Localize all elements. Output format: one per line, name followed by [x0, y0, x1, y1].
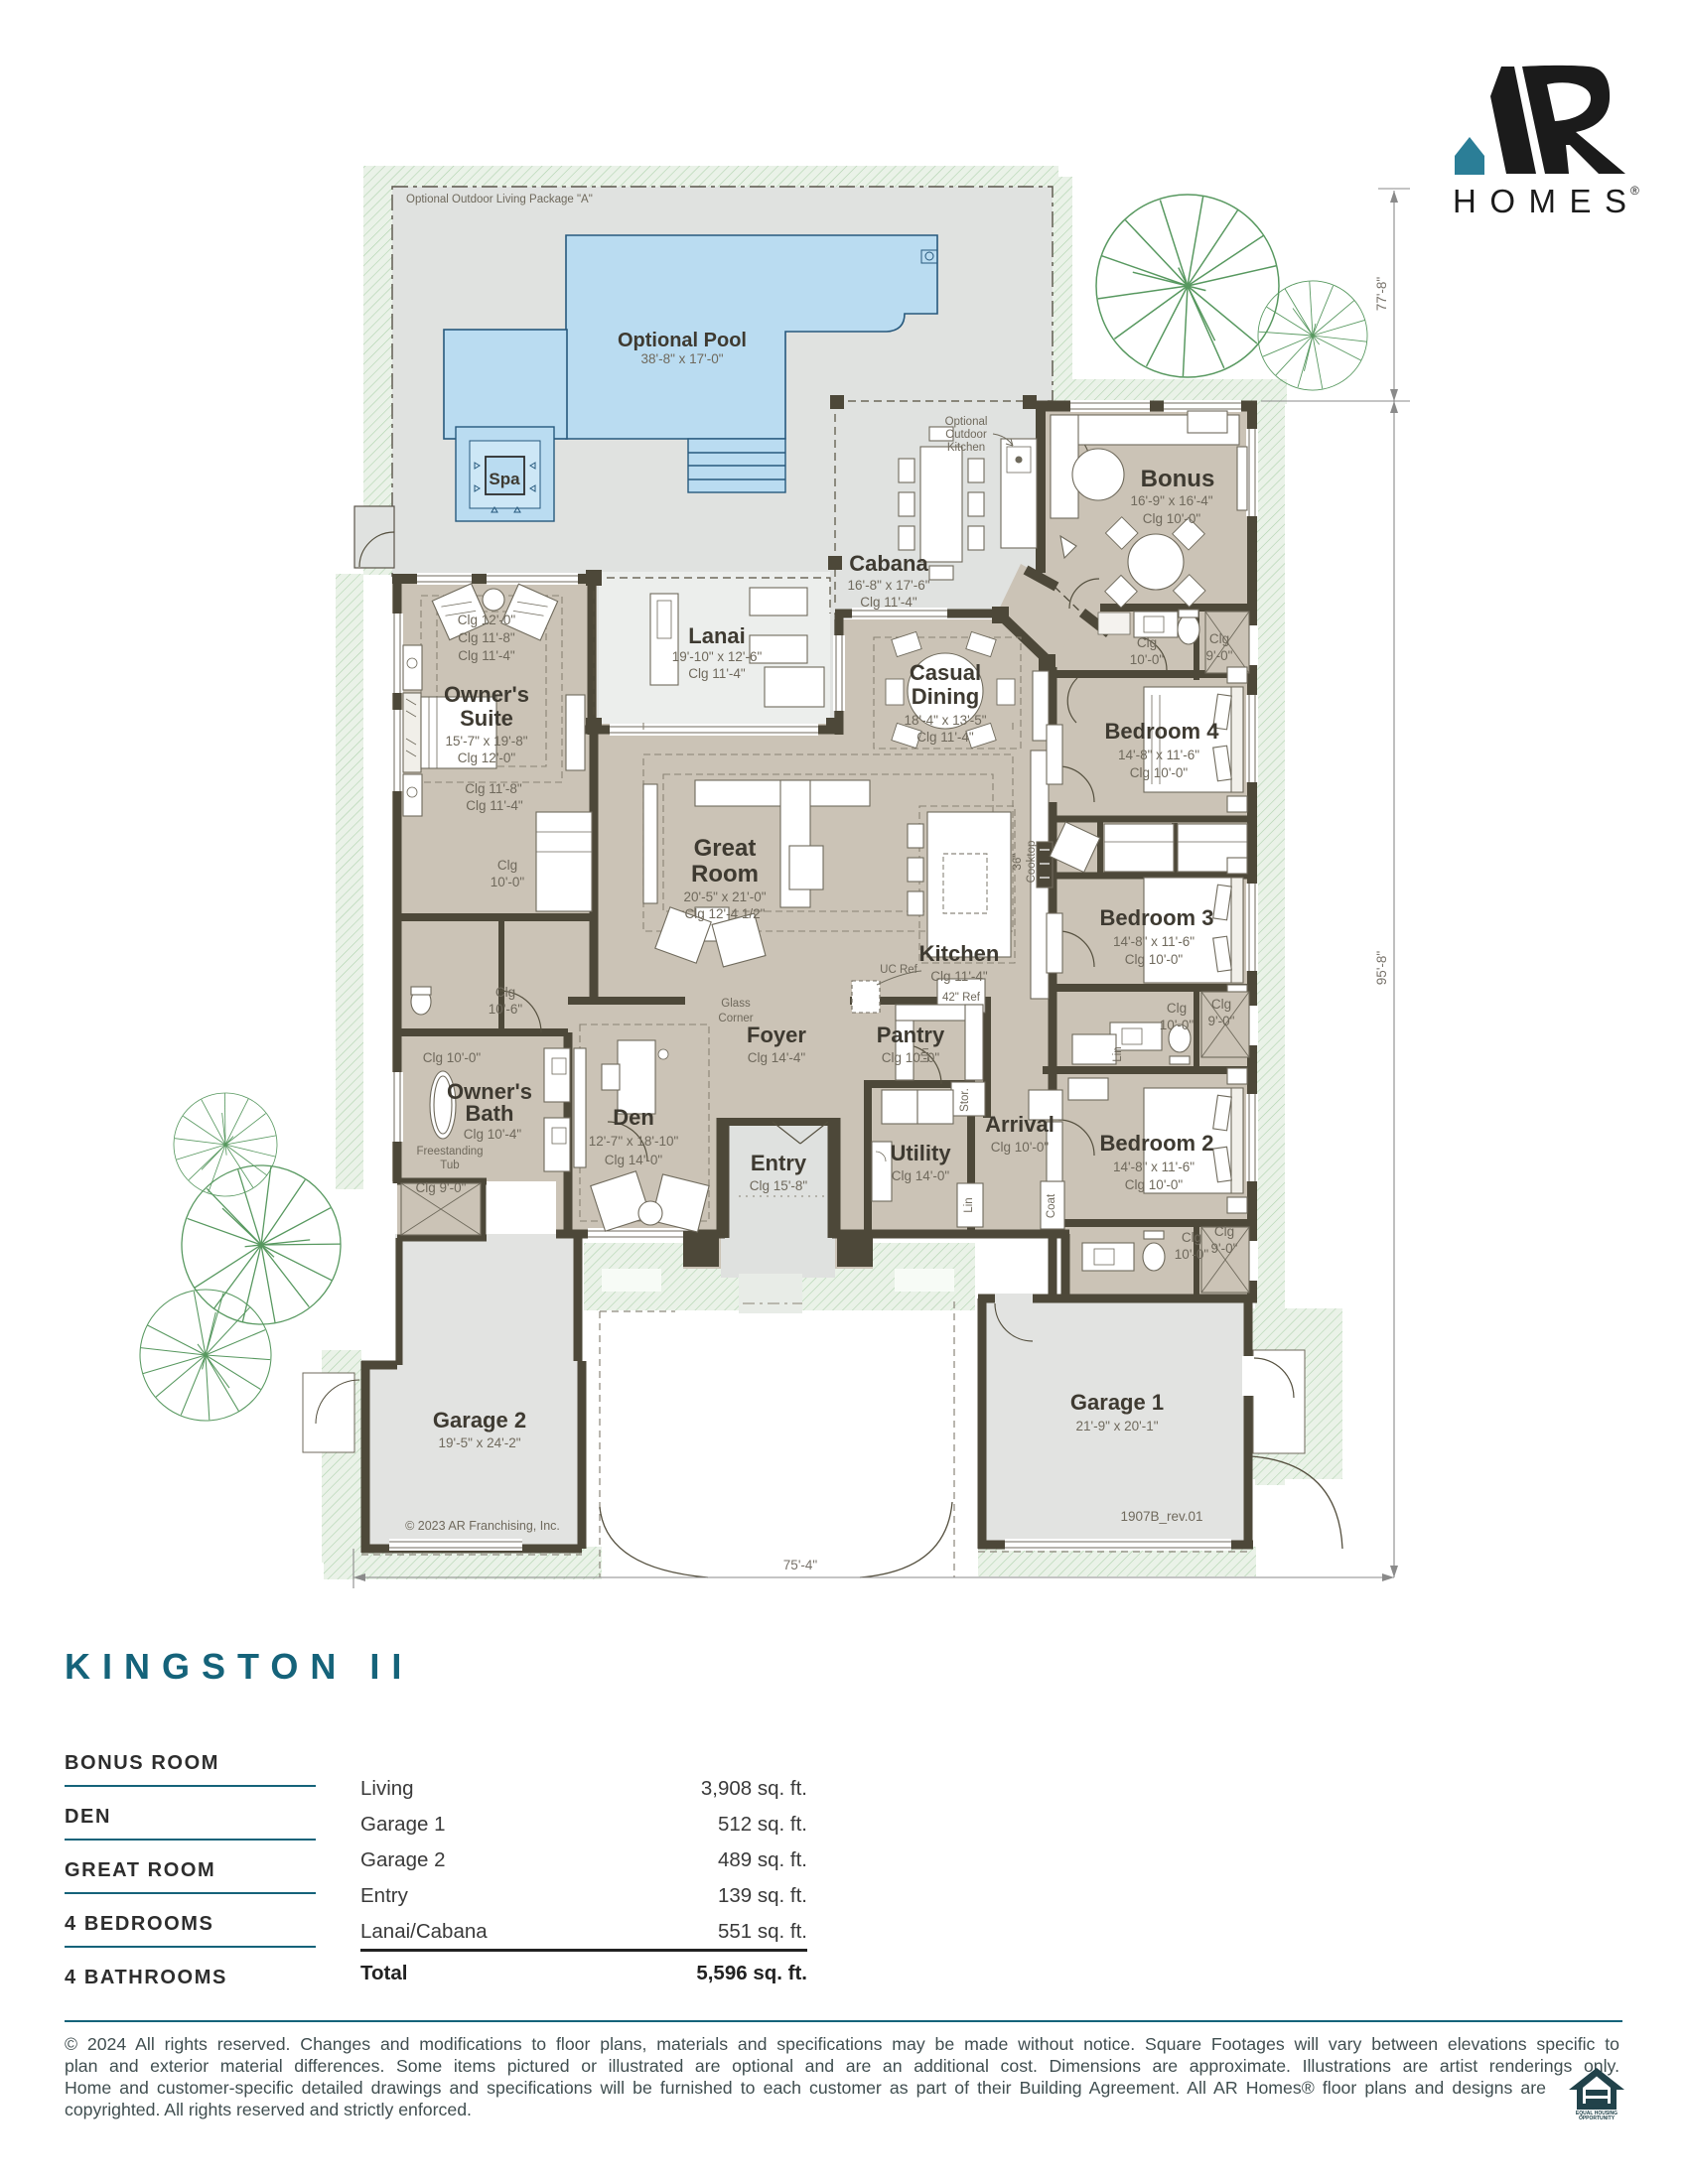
- svg-text:Outdoor: Outdoor: [945, 429, 987, 441]
- svg-text:Kitchen: Kitchen: [919, 941, 1000, 966]
- svg-text:16'-8" x 17'-6": 16'-8" x 17'-6": [847, 578, 929, 593]
- svg-text:Clg 10'-0": Clg 10'-0": [423, 1050, 482, 1065]
- svg-text:Clg 14'-4": Clg 14'-4": [748, 1050, 806, 1065]
- svg-text:Bedroom 2: Bedroom 2: [1100, 1131, 1214, 1156]
- svg-text:Spa: Spa: [489, 470, 520, 488]
- svg-text:Bedroom 4: Bedroom 4: [1105, 719, 1220, 744]
- svg-text:© 2023 AR Franchising, Inc.: © 2023 AR Franchising, Inc.: [405, 1519, 560, 1533]
- svg-text:77'-8": 77'-8": [1374, 277, 1389, 312]
- svg-text:Clg 10'-0": Clg 10'-0": [1130, 765, 1189, 780]
- svg-text:OPPORTUNITY: OPPORTUNITY: [1579, 2116, 1616, 2119]
- svg-text:Lin: Lin: [1112, 1046, 1124, 1061]
- svg-text:Clg 11'-8": Clg 11'-8": [458, 630, 515, 645]
- svg-text:Corner: Corner: [718, 1013, 753, 1024]
- svg-text:12'-7" x 18'-10": 12'-7" x 18'-10": [589, 1134, 679, 1149]
- svg-text:Clg 11'-4": Clg 11'-4": [458, 648, 515, 663]
- svg-text:14'-8" x 11'-6": 14'-8" x 11'-6": [1118, 748, 1199, 762]
- svg-text:Clg 12'-0": Clg 12'-0": [458, 751, 516, 765]
- svg-text:9'-0": 9'-0": [1211, 1241, 1238, 1256]
- svg-text:95'-8": 95'-8": [1374, 951, 1389, 986]
- svg-text:Clg: Clg: [497, 858, 517, 873]
- svg-text:Lanai: Lanai: [688, 623, 745, 648]
- svg-text:10'-6": 10'-6": [489, 1002, 523, 1017]
- svg-text:Clg: Clg: [1211, 997, 1231, 1012]
- svg-text:Kitchen: Kitchen: [947, 442, 985, 454]
- svg-text:Clg 11'-4": Clg 11'-4": [688, 666, 746, 681]
- svg-text:Arrival: Arrival: [985, 1112, 1055, 1137]
- svg-text:18'-4" x 13'-5": 18'-4" x 13'-5": [904, 713, 986, 728]
- svg-text:Clg 11'-4": Clg 11'-4": [466, 798, 523, 813]
- svg-text:UC Ref: UC Ref: [880, 964, 918, 976]
- svg-text:Cooktop: Cooktop: [1026, 841, 1038, 884]
- svg-text:Bonus: Bonus: [1141, 466, 1215, 492]
- svg-text:Lin: Lin: [919, 1047, 931, 1062]
- svg-text:Cabana: Cabana: [849, 551, 928, 576]
- svg-text:38'-8" x 17'-0": 38'-8" x 17'-0": [640, 351, 723, 366]
- svg-text:Dining: Dining: [912, 684, 979, 709]
- svg-text:19'-10" x 12'-6": 19'-10" x 12'-6": [672, 649, 763, 664]
- svg-text:Clg 11'-4": Clg 11'-4": [860, 595, 917, 610]
- svg-text:14'-8" x 11'-6": 14'-8" x 11'-6": [1113, 934, 1195, 949]
- svg-text:10'-0": 10'-0": [1160, 1018, 1195, 1032]
- svg-text:HOMES: HOMES: [1453, 183, 1640, 219]
- svg-text:10'-0": 10'-0": [491, 875, 525, 889]
- svg-text:9'-0": 9'-0": [1208, 1014, 1235, 1028]
- svg-text:Coat: Coat: [1046, 1193, 1057, 1218]
- svg-text:Clg 10'-0": Clg 10'-0": [1143, 511, 1201, 526]
- svg-text:1907B_rev.01: 1907B_rev.01: [1120, 1509, 1202, 1524]
- svg-text:15'-7" x 19'-8": 15'-7" x 19'-8": [445, 734, 527, 749]
- svg-text:Clg 12'-0": Clg 12'-0": [458, 613, 516, 627]
- svg-text:Clg 9'-0": Clg 9'-0": [416, 1180, 467, 1195]
- svg-text:Suite: Suite: [460, 706, 513, 731]
- svg-text:Clg: Clg: [1209, 631, 1229, 646]
- svg-text:Den: Den: [613, 1105, 654, 1130]
- svg-text:10'-0": 10'-0": [1175, 1247, 1209, 1262]
- svg-text:10'-0": 10'-0": [1130, 652, 1165, 667]
- svg-text:42" Ref: 42" Ref: [942, 992, 981, 1004]
- svg-text:Owner's: Owner's: [444, 682, 529, 707]
- svg-text:Clg 11'-4": Clg 11'-4": [930, 969, 988, 984]
- svg-text:Optional: Optional: [945, 416, 988, 428]
- svg-text:Garage 2: Garage 2: [433, 1408, 526, 1433]
- svg-text:Clg 11'-4": Clg 11'-4": [916, 730, 974, 745]
- svg-text:Clg 12'-4 1/2": Clg 12'-4 1/2": [685, 906, 766, 921]
- svg-text:Great: Great: [694, 835, 757, 862]
- svg-text:Entry: Entry: [751, 1151, 807, 1175]
- svg-text:Lin: Lin: [963, 1197, 975, 1212]
- svg-text:®: ®: [1630, 184, 1639, 198]
- svg-text:Foyer: Foyer: [747, 1023, 806, 1047]
- svg-text:36": 36": [1012, 854, 1024, 871]
- svg-text:19'-5" x 24'-2": 19'-5" x 24'-2": [438, 1435, 520, 1450]
- svg-text:Optional Pool: Optional Pool: [618, 330, 747, 351]
- svg-text:Clg 14'-0": Clg 14'-0": [892, 1168, 950, 1183]
- svg-text:Clg: Clg: [495, 985, 515, 1000]
- svg-text:Clg: Clg: [1214, 1224, 1234, 1239]
- svg-text:Garage 1: Garage 1: [1070, 1390, 1164, 1415]
- svg-text:Clg: Clg: [1137, 635, 1157, 650]
- svg-text:75'-4": 75'-4": [783, 1558, 818, 1572]
- svg-text:21'-9" x 20'-1": 21'-9" x 20'-1": [1075, 1419, 1158, 1433]
- svg-text:9'-0": 9'-0": [1206, 648, 1233, 663]
- svg-text:16'-9" x 16'-4": 16'-9" x 16'-4": [1130, 493, 1212, 508]
- svg-text:Casual: Casual: [910, 660, 981, 685]
- svg-text:Glass: Glass: [721, 998, 751, 1010]
- svg-text:Bedroom 3: Bedroom 3: [1100, 905, 1214, 930]
- svg-text:Clg 10'-0": Clg 10'-0": [1125, 952, 1184, 967]
- svg-text:Optional Outdoor Living Packag: Optional Outdoor Living Package "A": [406, 194, 593, 205]
- svg-text:Clg 11'-8": Clg 11'-8": [465, 781, 522, 796]
- svg-text:Clg 10'-0": Clg 10'-0": [1125, 1177, 1184, 1192]
- svg-text:20'-5" x 21'-0": 20'-5" x 21'-0": [683, 889, 766, 904]
- svg-text:Room: Room: [691, 861, 759, 887]
- svg-text:Stor.: Stor.: [959, 1088, 971, 1112]
- svg-text:Utility: Utility: [890, 1141, 951, 1165]
- svg-text:Clg 10'-4": Clg 10'-4": [464, 1127, 522, 1142]
- svg-text:Clg 15'-8": Clg 15'-8": [750, 1178, 808, 1193]
- svg-text:Clg: Clg: [1167, 1001, 1187, 1016]
- svg-text:Clg: Clg: [1182, 1230, 1201, 1245]
- svg-text:14'-8" x 11'-6": 14'-8" x 11'-6": [1113, 1160, 1195, 1174]
- svg-text:Clg 14'-0": Clg 14'-0": [605, 1153, 663, 1167]
- svg-text:Clg 10'-0": Clg 10'-0": [991, 1140, 1050, 1155]
- svg-text:Pantry: Pantry: [877, 1023, 945, 1047]
- svg-text:Bath: Bath: [466, 1101, 514, 1126]
- svg-text:Freestanding: Freestanding: [416, 1146, 483, 1158]
- svg-text:Tub: Tub: [440, 1160, 459, 1171]
